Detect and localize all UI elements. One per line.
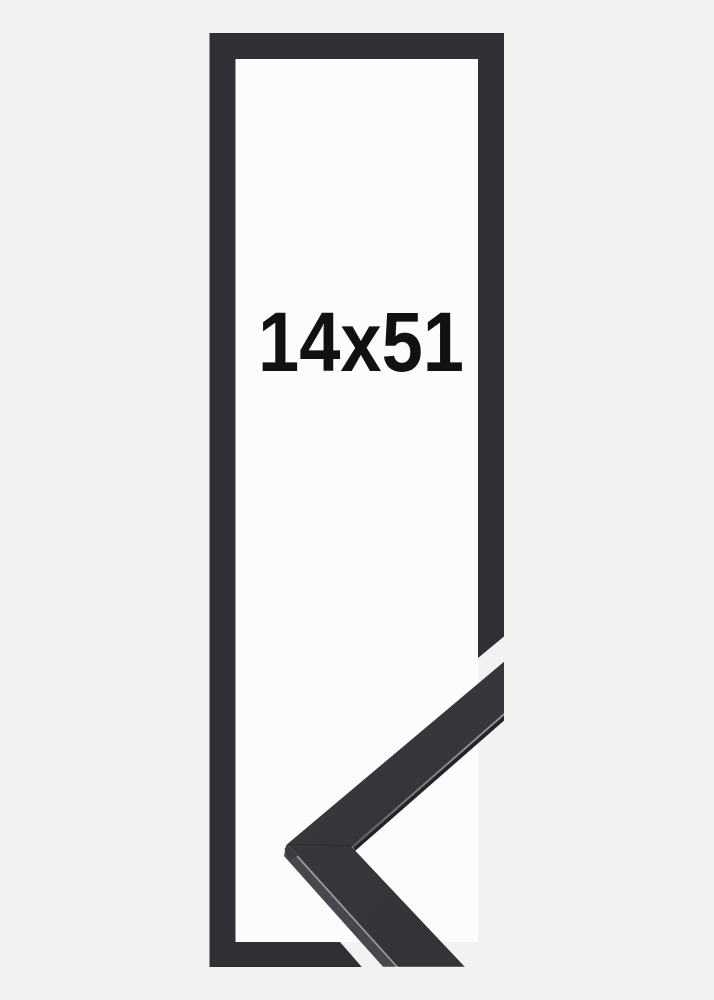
svg-text:14x51: 14x51 bbox=[258, 294, 464, 389]
